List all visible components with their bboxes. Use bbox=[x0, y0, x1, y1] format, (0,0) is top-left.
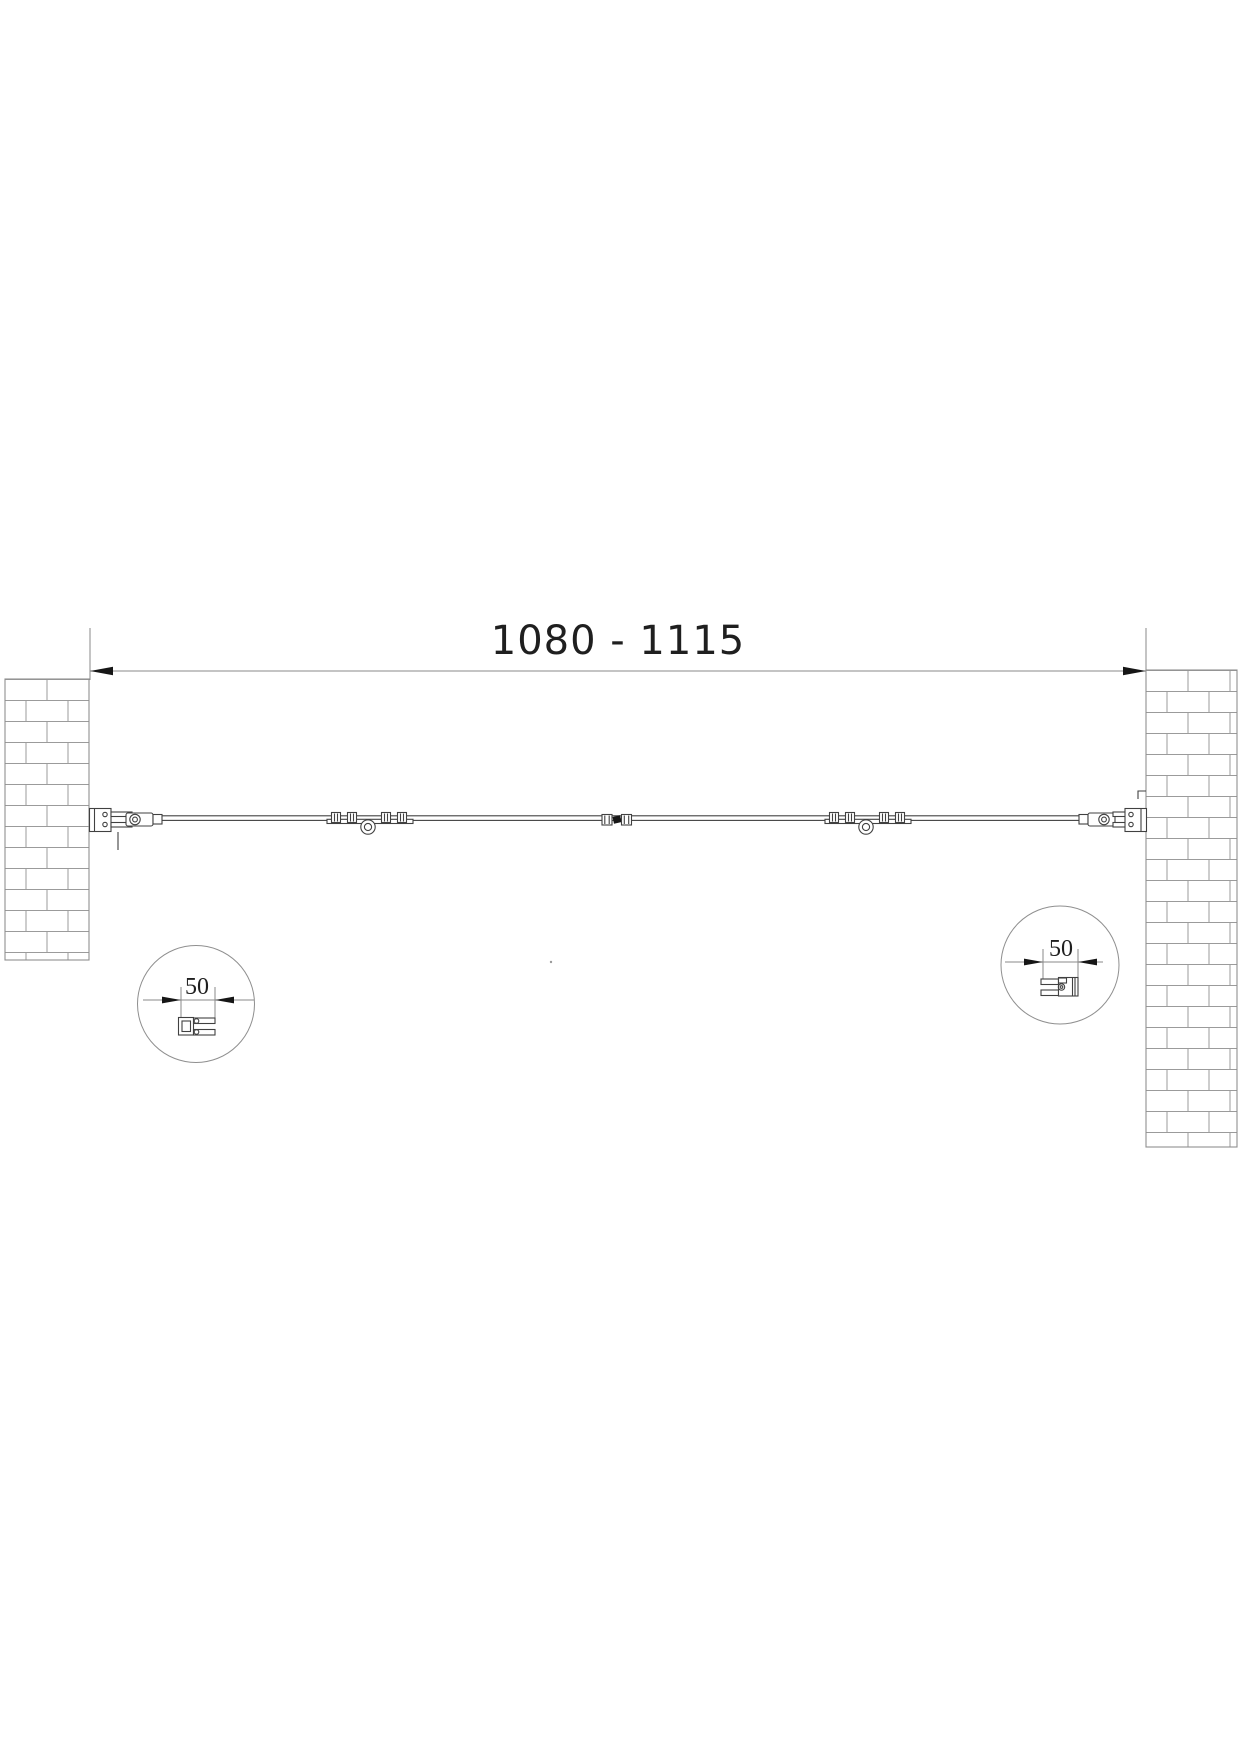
detail-bubble-outline bbox=[138, 946, 255, 1063]
center-connector bbox=[602, 815, 632, 826]
dimension-arrow-right bbox=[215, 997, 234, 1004]
dimension-arrow-left bbox=[1024, 959, 1043, 966]
wall-bracket-right bbox=[1079, 791, 1147, 832]
door-assembly bbox=[90, 791, 1147, 850]
wall-bracket-left bbox=[90, 809, 163, 851]
left-wall bbox=[5, 679, 89, 960]
pivot-pin-icon bbox=[130, 814, 140, 824]
profile-section-right bbox=[1041, 978, 1078, 997]
dimension-arrow-left bbox=[162, 997, 181, 1004]
roller-wheel-icon bbox=[859, 820, 873, 834]
dimension-arrow-right bbox=[1078, 959, 1097, 966]
wall-profile-right bbox=[1125, 809, 1147, 832]
detail-circle-right: 50 bbox=[1001, 906, 1119, 1024]
dimension-arrow-right bbox=[1123, 667, 1146, 675]
detail-circle-left: 50 bbox=[138, 946, 255, 1063]
right-wall bbox=[1146, 670, 1237, 1147]
drawing-canvas: 1080 - 1115 bbox=[0, 0, 1240, 1754]
technical-drawing: 1080 - 1115 bbox=[0, 0, 1240, 1754]
stray-mark bbox=[550, 961, 552, 963]
main-dimension-text: 1080 - 1115 bbox=[491, 618, 745, 664]
detail-dimension-text-left: 50 bbox=[185, 974, 209, 1000]
roller-wheel-icon bbox=[361, 820, 375, 834]
main-dimension: 1080 - 1115 bbox=[90, 618, 1146, 680]
detail-dimension-text-right: 50 bbox=[1049, 936, 1073, 962]
pivot-pin-icon bbox=[1099, 814, 1109, 824]
wall-notch bbox=[1138, 791, 1146, 799]
dimension-arrow-left bbox=[90, 667, 113, 675]
profile-section-left bbox=[179, 1018, 216, 1036]
wall-profile-left bbox=[90, 809, 112, 832]
detail-bubble-outline bbox=[1001, 906, 1119, 1024]
